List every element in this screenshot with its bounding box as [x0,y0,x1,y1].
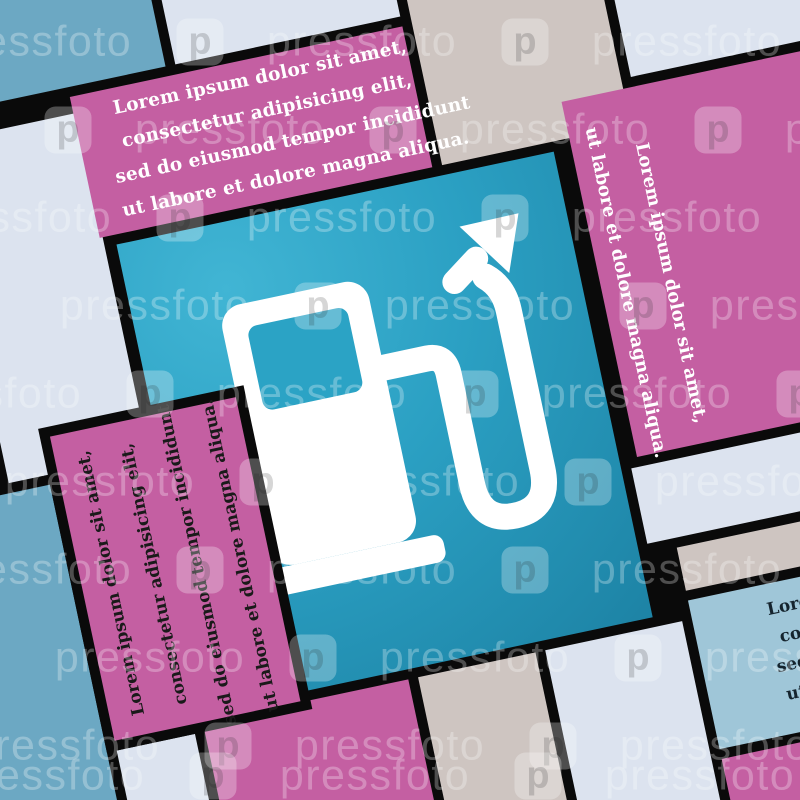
flat-design-composition: Lorem ipsum dolor sit amet,consectetur a… [0,0,800,800]
stock-illustration-canvas: Lorem ipsum dolor sit amet,consectetur a… [0,0,800,800]
pump-arrow [421,190,543,314]
